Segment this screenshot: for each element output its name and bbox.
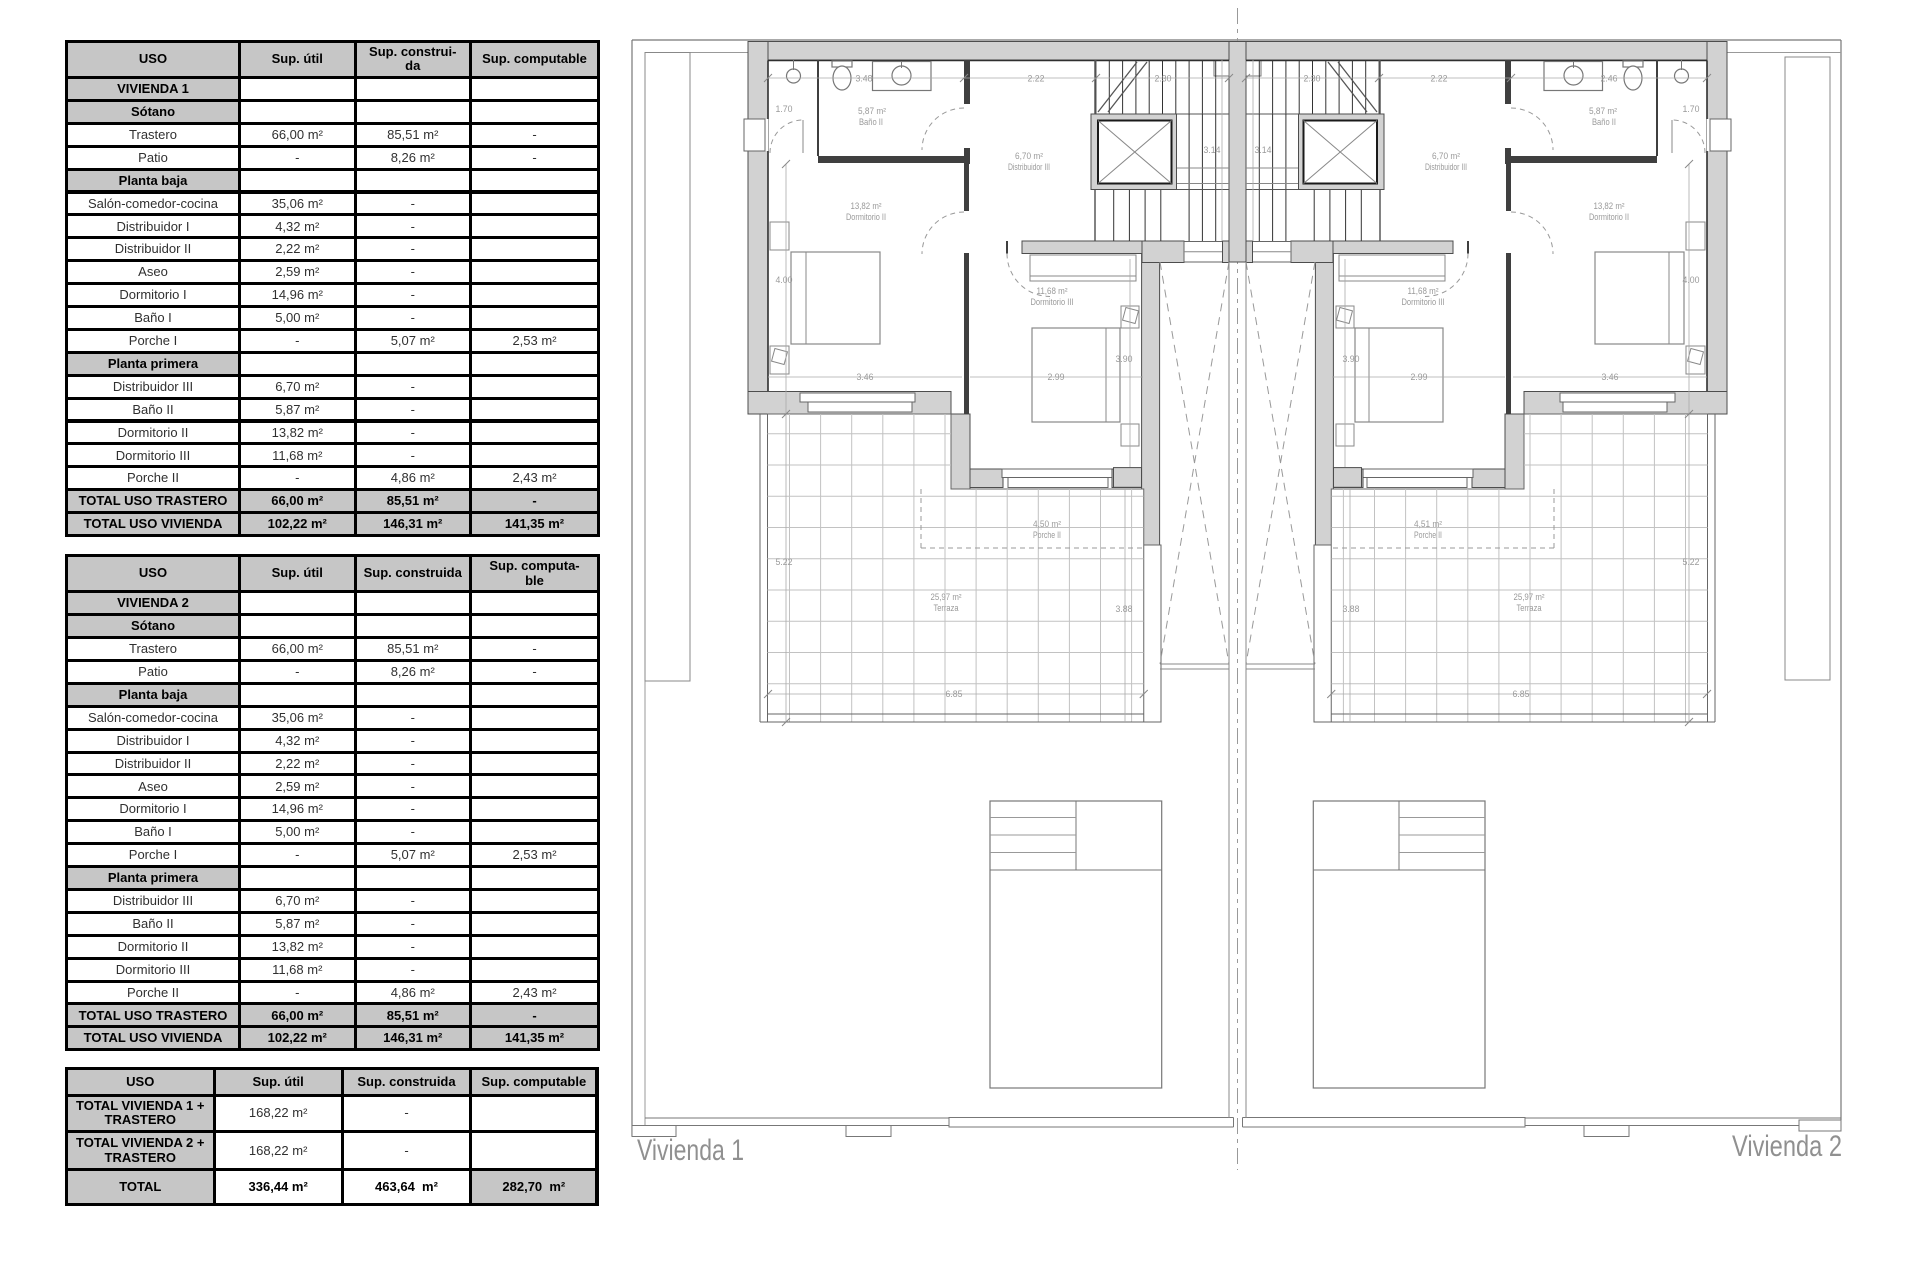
svg-text:Vivienda 1: Vivienda 1 bbox=[637, 1134, 744, 1167]
svg-text:3.46: 3.46 bbox=[1602, 372, 1619, 382]
svg-text:Distribuidor III: Distribuidor III bbox=[1008, 162, 1050, 172]
svg-text:3.46: 3.46 bbox=[857, 372, 874, 382]
svg-text:5.22: 5.22 bbox=[776, 557, 793, 567]
svg-text:Vivienda 2: Vivienda 2 bbox=[1732, 1130, 1842, 1163]
svg-text:6,70 m²: 6,70 m² bbox=[1432, 151, 1460, 161]
svg-text:2.22: 2.22 bbox=[1028, 74, 1045, 84]
svg-text:Terraza: Terraza bbox=[934, 603, 959, 613]
svg-text:2.99: 2.99 bbox=[1048, 372, 1065, 382]
svg-text:6.85: 6.85 bbox=[946, 689, 963, 699]
svg-text:2.99: 2.99 bbox=[1411, 372, 1428, 382]
svg-text:2.30: 2.30 bbox=[1155, 74, 1172, 84]
svg-text:Porche II: Porche II bbox=[1414, 530, 1442, 540]
svg-text:3.14: 3.14 bbox=[1255, 145, 1272, 155]
svg-text:13,82 m²: 13,82 m² bbox=[851, 201, 882, 211]
svg-text:6.85: 6.85 bbox=[1513, 689, 1530, 699]
svg-text:Baño II: Baño II bbox=[1592, 117, 1616, 127]
svg-text:3.90: 3.90 bbox=[1343, 354, 1360, 364]
svg-text:3.48: 3.48 bbox=[856, 74, 873, 84]
svg-text:Distribuidor III: Distribuidor III bbox=[1425, 162, 1467, 172]
svg-text:5,87 m²: 5,87 m² bbox=[1589, 106, 1617, 116]
svg-text:5,87 m²: 5,87 m² bbox=[858, 106, 886, 116]
svg-text:2.30: 2.30 bbox=[1304, 74, 1321, 84]
svg-text:Dormitorio III: Dormitorio III bbox=[1031, 297, 1074, 307]
svg-text:Terraza: Terraza bbox=[1517, 603, 1542, 613]
svg-text:1.70: 1.70 bbox=[1683, 104, 1700, 114]
svg-text:Porche II: Porche II bbox=[1033, 530, 1061, 540]
svg-text:1.70: 1.70 bbox=[776, 104, 793, 114]
svg-text:25,97 m²: 25,97 m² bbox=[1514, 592, 1545, 602]
svg-text:Baño II: Baño II bbox=[859, 117, 883, 127]
svg-text:4,50 m²: 4,50 m² bbox=[1033, 519, 1061, 529]
svg-text:6,70 m²: 6,70 m² bbox=[1015, 151, 1043, 161]
svg-text:4,51 m²: 4,51 m² bbox=[1414, 519, 1442, 529]
svg-text:11,68 m²: 11,68 m² bbox=[1408, 286, 1439, 296]
svg-text:4.00: 4.00 bbox=[776, 275, 793, 285]
svg-text:13,82 m²: 13,82 m² bbox=[1594, 201, 1625, 211]
svg-text:2.46: 2.46 bbox=[1601, 74, 1618, 84]
svg-text:2.22: 2.22 bbox=[1431, 74, 1448, 84]
svg-text:3.14: 3.14 bbox=[1204, 145, 1221, 155]
svg-text:Dormitorio II: Dormitorio II bbox=[846, 212, 886, 222]
svg-text:4.00: 4.00 bbox=[1683, 275, 1700, 285]
svg-text:Dormitorio II: Dormitorio II bbox=[1589, 212, 1629, 222]
svg-text:3.88: 3.88 bbox=[1343, 604, 1360, 614]
svg-text:11,68 m²: 11,68 m² bbox=[1037, 286, 1068, 296]
svg-text:25,97 m²: 25,97 m² bbox=[931, 592, 962, 602]
svg-text:5.22: 5.22 bbox=[1683, 557, 1700, 567]
svg-text:3.88: 3.88 bbox=[1116, 604, 1133, 614]
svg-text:3.90: 3.90 bbox=[1116, 354, 1133, 364]
svg-text:Dormitorio III: Dormitorio III bbox=[1402, 297, 1445, 307]
